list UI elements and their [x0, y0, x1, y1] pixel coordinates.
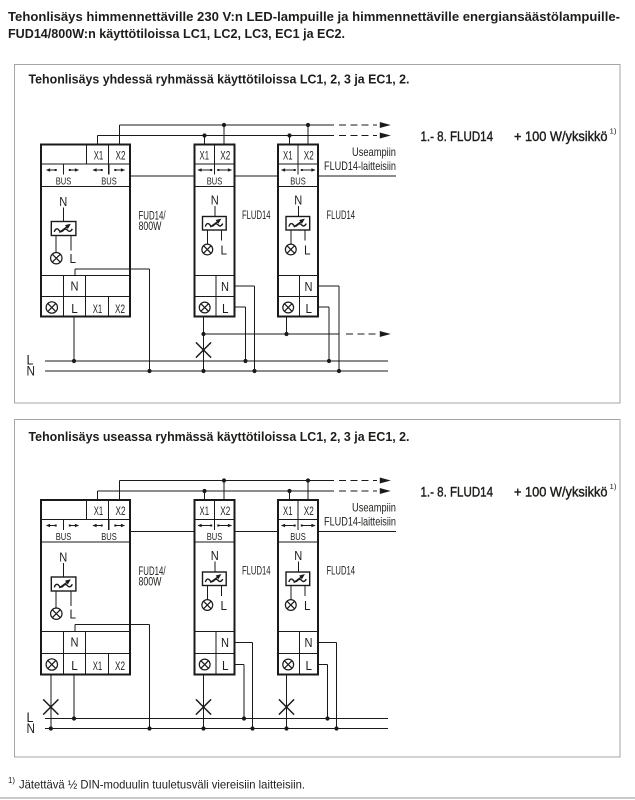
svg-text:BUS: BUS — [207, 176, 223, 188]
svg-text:N: N — [211, 548, 219, 563]
svg-text:1.- 8. FLUD14: 1.- 8. FLUD14 — [421, 485, 494, 500]
svg-text:1): 1) — [8, 776, 15, 785]
svg-text:L: L — [221, 598, 228, 613]
svg-text:1): 1) — [610, 482, 618, 491]
svg-text:N: N — [59, 194, 67, 209]
svg-text:+ 100 W/yksikkö: + 100 W/yksikkö — [514, 485, 608, 500]
svg-text:X1: X1 — [93, 659, 103, 673]
svg-text:X2: X2 — [115, 302, 125, 316]
svg-text:L: L — [306, 301, 313, 316]
svg-text:X1: X1 — [93, 302, 103, 316]
svg-text:1): 1) — [610, 127, 618, 136]
svg-text:X1: X1 — [200, 149, 210, 163]
svg-text:X1: X1 — [200, 504, 210, 518]
svg-text:1.- 8. FLUD14: 1.- 8. FLUD14 — [421, 129, 494, 144]
svg-text:X2: X2 — [220, 504, 230, 518]
svg-text:N: N — [71, 279, 79, 294]
svg-text:FLUD14: FLUD14 — [242, 210, 271, 222]
svg-text:FLUD14-laitteisiin: FLUD14-laitteisiin — [324, 515, 396, 529]
svg-text:N: N — [221, 635, 229, 650]
svg-text:BUS: BUS — [207, 531, 223, 543]
svg-text:Useampiin: Useampiin — [352, 145, 396, 159]
svg-text:Tehonlisäys useassa ryhmässä k: Tehonlisäys useassa ryhmässä käyttötiloi… — [29, 429, 410, 444]
svg-text:N: N — [59, 550, 67, 565]
svg-text:N: N — [27, 721, 36, 736]
svg-text:Jätettävä ½ DIN-moduulin tuule: Jätettävä ½ DIN-moduulin tuuletusväli vi… — [19, 778, 305, 792]
svg-text:L: L — [70, 607, 77, 622]
svg-text:BUS: BUS — [101, 531, 117, 543]
svg-text:Tehonlisäys yhdessä ryhmässä k: Tehonlisäys yhdessä ryhmässä käyttötiloi… — [29, 72, 410, 87]
svg-text:N: N — [305, 279, 313, 294]
svg-text:X2: X2 — [304, 149, 314, 163]
svg-text:BUS: BUS — [101, 176, 117, 188]
svg-text:N: N — [71, 635, 79, 650]
svg-text:L: L — [222, 301, 229, 316]
svg-text:BUS: BUS — [56, 176, 72, 188]
svg-text:X2: X2 — [220, 149, 230, 163]
svg-text:BUS: BUS — [290, 531, 306, 543]
svg-text:FLUD14-laitteisiin: FLUD14-laitteisiin — [324, 159, 396, 173]
svg-text:X1: X1 — [94, 504, 104, 518]
svg-text:N: N — [27, 364, 36, 379]
svg-text:L: L — [221, 243, 228, 258]
svg-text:BUS: BUS — [56, 531, 72, 543]
svg-text:FLUD14: FLUD14 — [327, 566, 356, 578]
svg-text:N: N — [221, 279, 229, 294]
svg-text:FUD14/800W:n käyttötiloissa LC: FUD14/800W:n käyttötiloissa LC1, LC2, LC… — [8, 26, 345, 41]
svg-text:X1: X1 — [94, 149, 104, 163]
svg-text:X1: X1 — [283, 504, 293, 518]
svg-text:X2: X2 — [304, 504, 314, 518]
svg-text:N: N — [305, 635, 313, 650]
svg-text:X2: X2 — [116, 149, 126, 163]
svg-text:N: N — [211, 193, 219, 208]
svg-text:L: L — [304, 598, 311, 613]
svg-text:Tehonlisäys himmennettäville 2: Tehonlisäys himmennettäville 230 V:n LED… — [8, 9, 620, 24]
svg-text:X2: X2 — [115, 659, 125, 673]
svg-text:800W: 800W — [139, 577, 162, 589]
svg-text:X1: X1 — [283, 149, 293, 163]
svg-text:FLUD14: FLUD14 — [242, 566, 271, 578]
svg-text:N: N — [294, 193, 302, 208]
svg-text:800W: 800W — [139, 221, 162, 233]
svg-text:FLUD14: FLUD14 — [327, 210, 356, 222]
svg-text:+ 100 W/yksikkö: + 100 W/yksikkö — [514, 129, 608, 144]
svg-text:L: L — [71, 301, 78, 316]
svg-text:N: N — [294, 548, 302, 563]
svg-text:L: L — [306, 658, 313, 673]
svg-text:Useampiin: Useampiin — [352, 501, 396, 515]
svg-text:L: L — [304, 243, 311, 258]
svg-text:L: L — [70, 251, 77, 266]
svg-text:BUS: BUS — [290, 176, 306, 188]
svg-text:L: L — [222, 658, 229, 673]
svg-text:L: L — [71, 658, 78, 673]
svg-text:X2: X2 — [116, 504, 126, 518]
